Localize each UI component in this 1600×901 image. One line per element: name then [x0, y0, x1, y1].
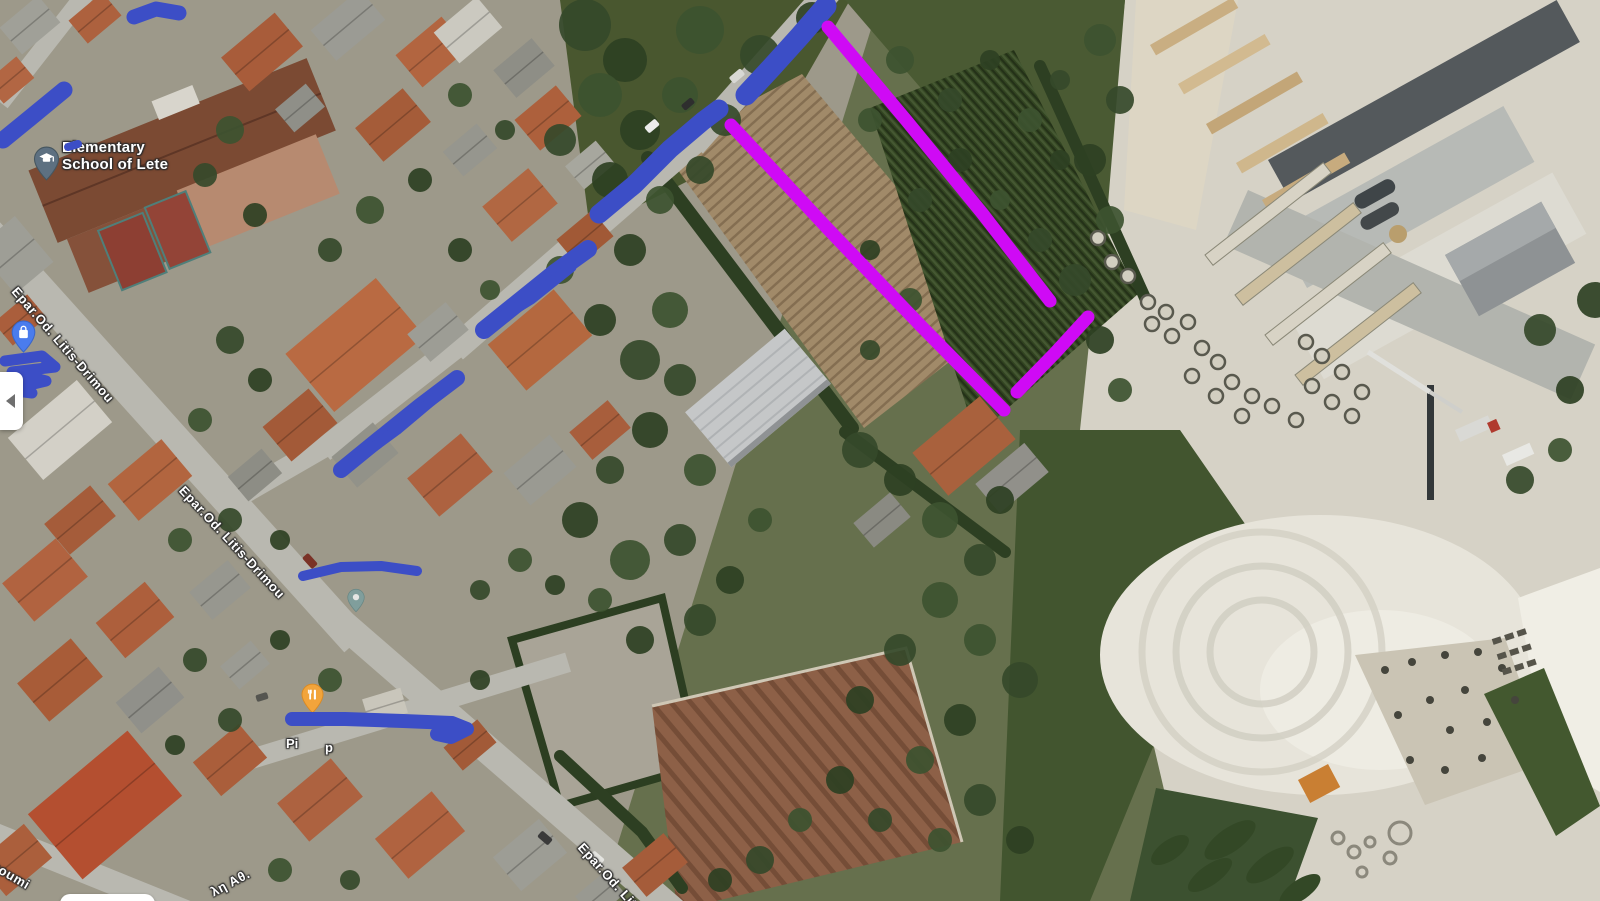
satellite-imagery	[0, 0, 1600, 901]
poi-label-fragment-1: Pi	[286, 736, 298, 751]
place-dot-icon	[353, 594, 359, 600]
chevron-left-icon	[6, 394, 15, 408]
school-pin[interactable]	[33, 146, 60, 181]
collapse-panel-button[interactable]	[0, 372, 23, 430]
partial-label-chip	[60, 894, 155, 901]
poi-label-fragment-2: p	[325, 740, 333, 755]
school-label: Elementary School of Lete	[62, 139, 168, 173]
map-canvas[interactable]: Elementary School of Lete Epar.Od. Litis…	[0, 0, 1600, 901]
restaurant-pin[interactable]	[301, 683, 324, 714]
school-label-line2: School of Lete	[62, 156, 168, 173]
teal-place-pin[interactable]	[347, 588, 365, 613]
school-label-line1: Elementary	[62, 139, 168, 156]
blue-place-pin[interactable]	[11, 320, 36, 353]
crane	[1427, 385, 1434, 500]
